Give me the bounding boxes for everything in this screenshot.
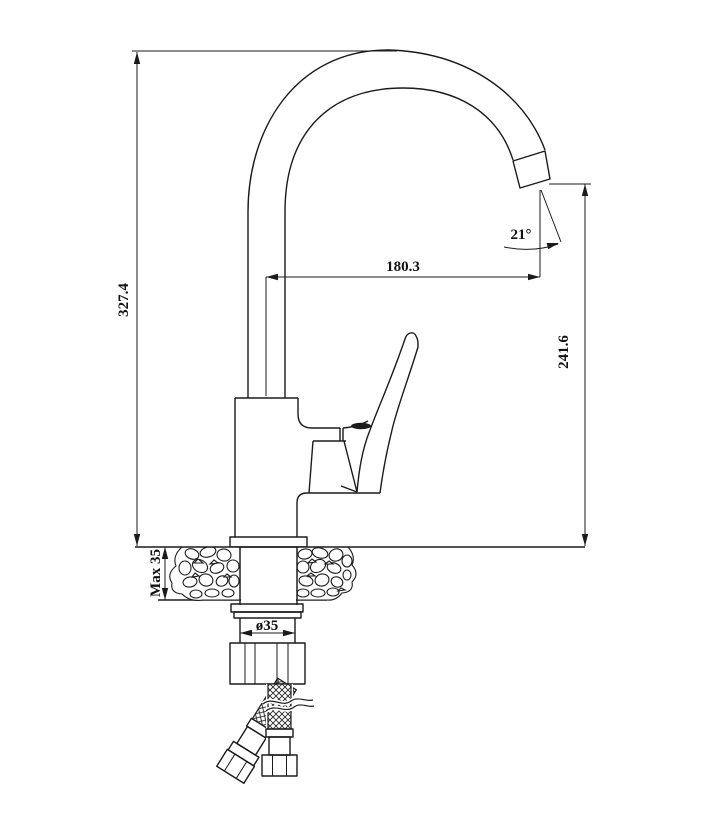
mounting-nut: [230, 643, 305, 684]
dimension-max-thickness: Max 35: [148, 547, 168, 600]
countertop-section: [135, 545, 585, 600]
counter-blob-left: [170, 545, 240, 600]
dim-text-outlet-height: 241.6: [556, 335, 572, 369]
dim-text-max-thickness: Max 35: [148, 549, 164, 597]
faucet-outline: [230, 50, 550, 547]
hose-nut-angled: [217, 749, 255, 783]
cartridge-joint: [341, 441, 357, 492]
dim-text-overall-height: 327.4: [116, 283, 132, 317]
dim-text-hole-diameter: ø35: [256, 618, 279, 634]
dimension-hole-diameter: ø35: [240, 618, 295, 636]
faucet-body: [235, 398, 346, 537]
dim-text-outlet-angle: 21°: [511, 227, 532, 243]
dim-text-spout-reach: 180.3: [386, 259, 420, 275]
handle-lever: [357, 333, 418, 493]
counter-blob-right: [297, 546, 356, 600]
spout-outer-arc: [248, 50, 545, 398]
dimension-outlet-angle: 21°: [504, 190, 561, 249]
dimension-overall-height: 327.4: [116, 51, 397, 546]
technical-drawing-canvas: 327.4 241.6 180.3 21° Max 35 ø35: [0, 0, 709, 827]
dimension-spout-reach: 180.3: [266, 190, 540, 396]
washer-plate: [231, 604, 303, 612]
handle-button: [351, 423, 371, 429]
aerator-tip: [513, 151, 550, 188]
faucet-drawing: 327.4 241.6 180.3 21° Max 35 ø35: [0, 0, 709, 827]
spout-inner-arc: [285, 88, 513, 398]
supply-hose-straight: [262, 684, 297, 777]
deck-plate: [230, 537, 307, 547]
handle-base: [297, 493, 380, 537]
dimension-outlet-height: 241.6: [549, 184, 591, 546]
